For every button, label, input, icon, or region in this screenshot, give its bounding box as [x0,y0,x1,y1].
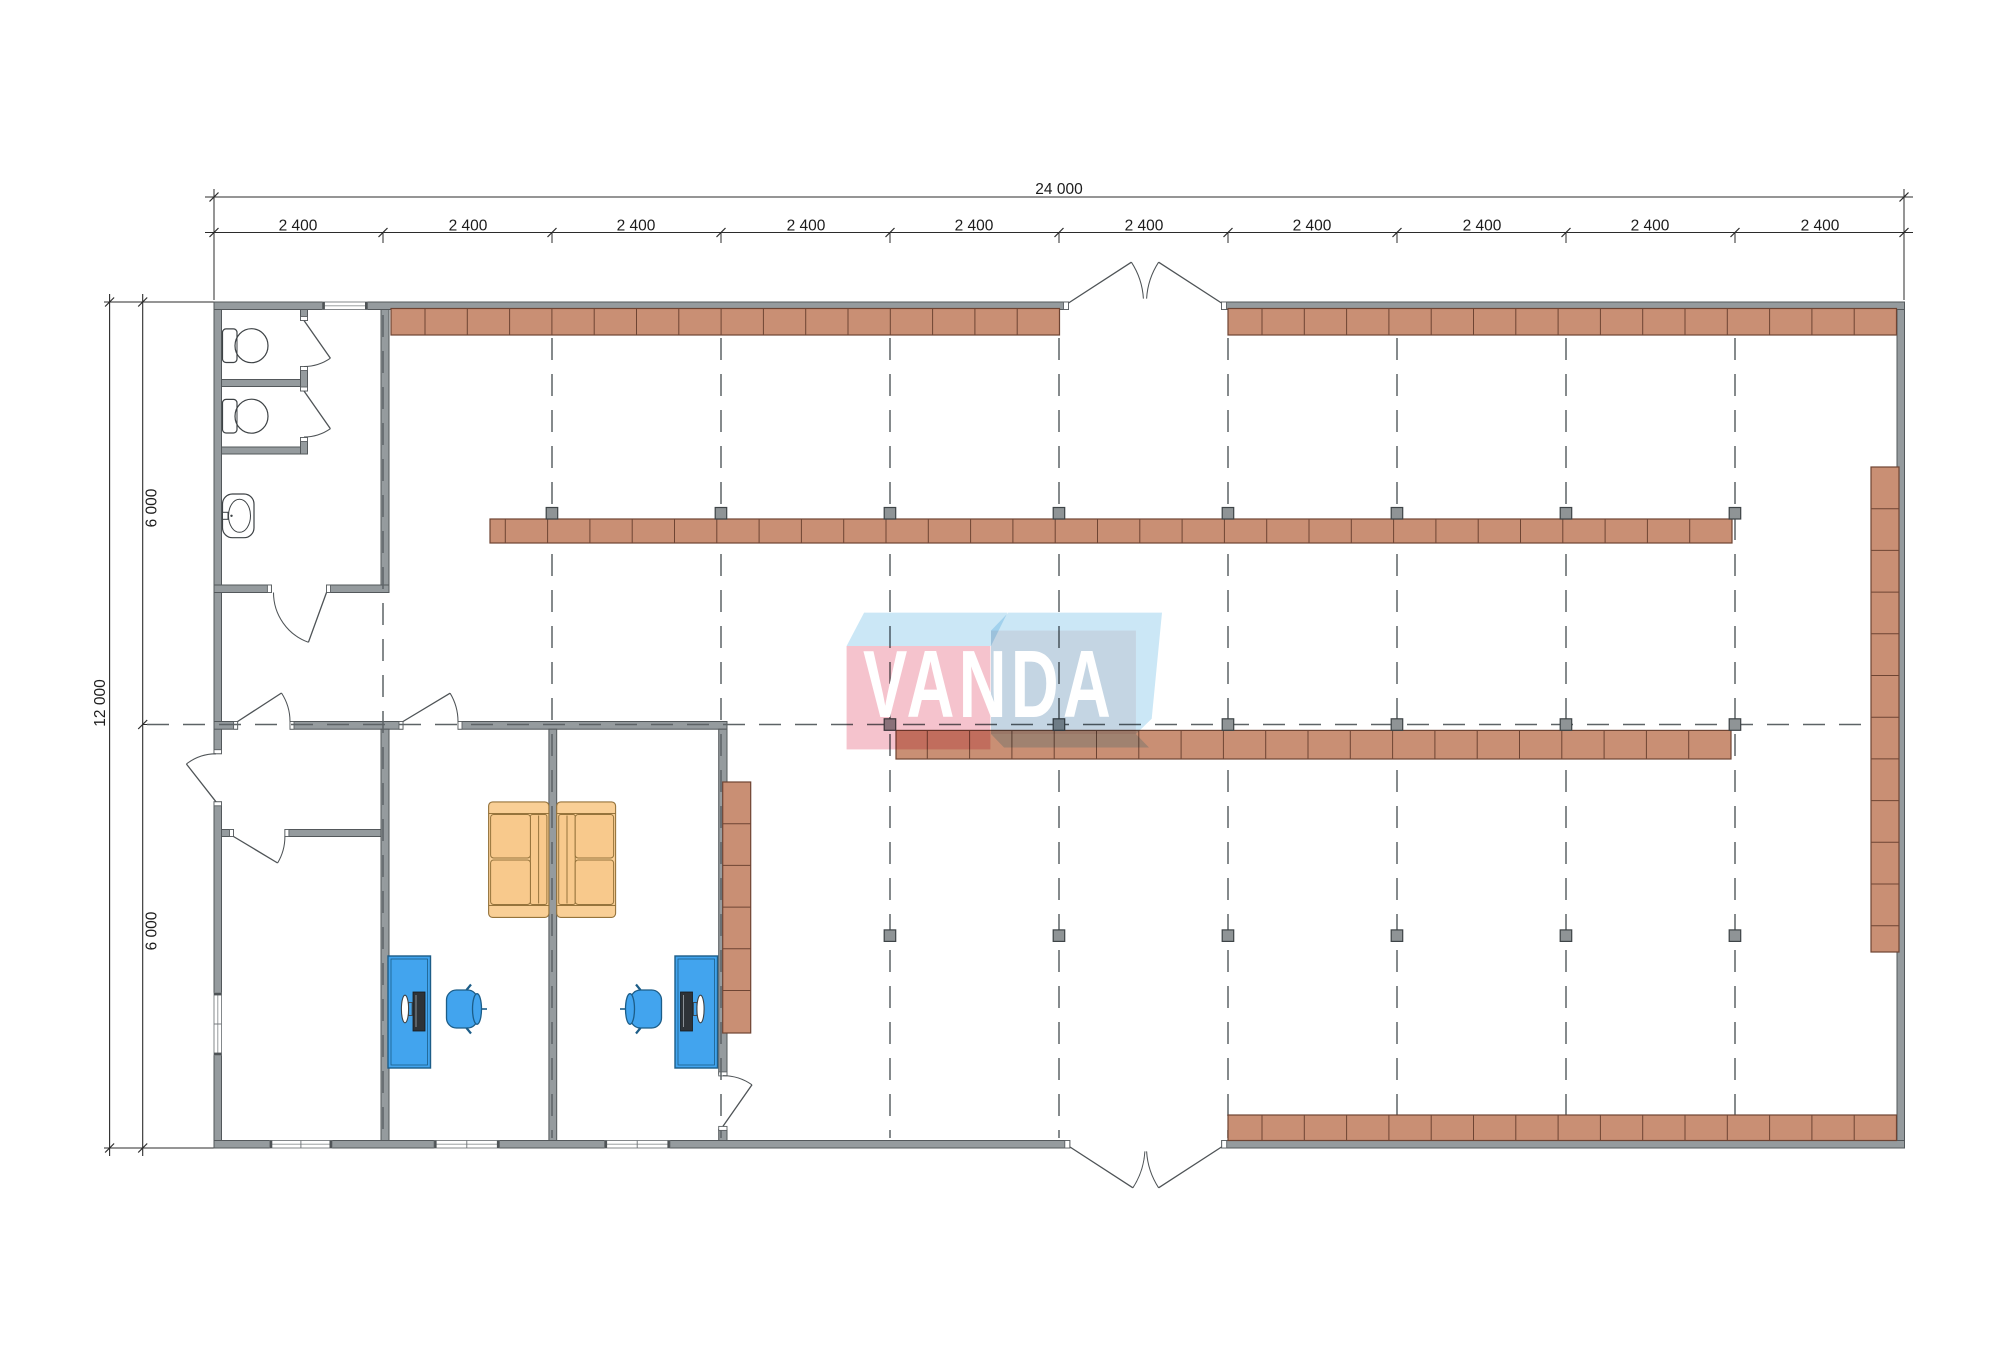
svg-text:2 400: 2 400 [1631,218,1670,235]
svg-text:2 400: 2 400 [449,218,488,235]
svg-text:2 400: 2 400 [1293,218,1332,235]
svg-text:2 400: 2 400 [1801,218,1840,235]
svg-text:24 000: 24 000 [1035,181,1083,198]
svg-text:2 400: 2 400 [279,218,318,235]
svg-text:2 400: 2 400 [955,218,994,235]
svg-text:6 000: 6 000 [144,911,161,950]
svg-text:6 000: 6 000 [144,488,161,527]
svg-text:12 000: 12 000 [92,679,109,727]
svg-text:VANDA: VANDA [863,631,1115,738]
svg-text:2 400: 2 400 [617,218,656,235]
svg-text:2 400: 2 400 [787,218,826,235]
svg-text:2 400: 2 400 [1463,218,1502,235]
svg-text:2 400: 2 400 [1125,218,1164,235]
